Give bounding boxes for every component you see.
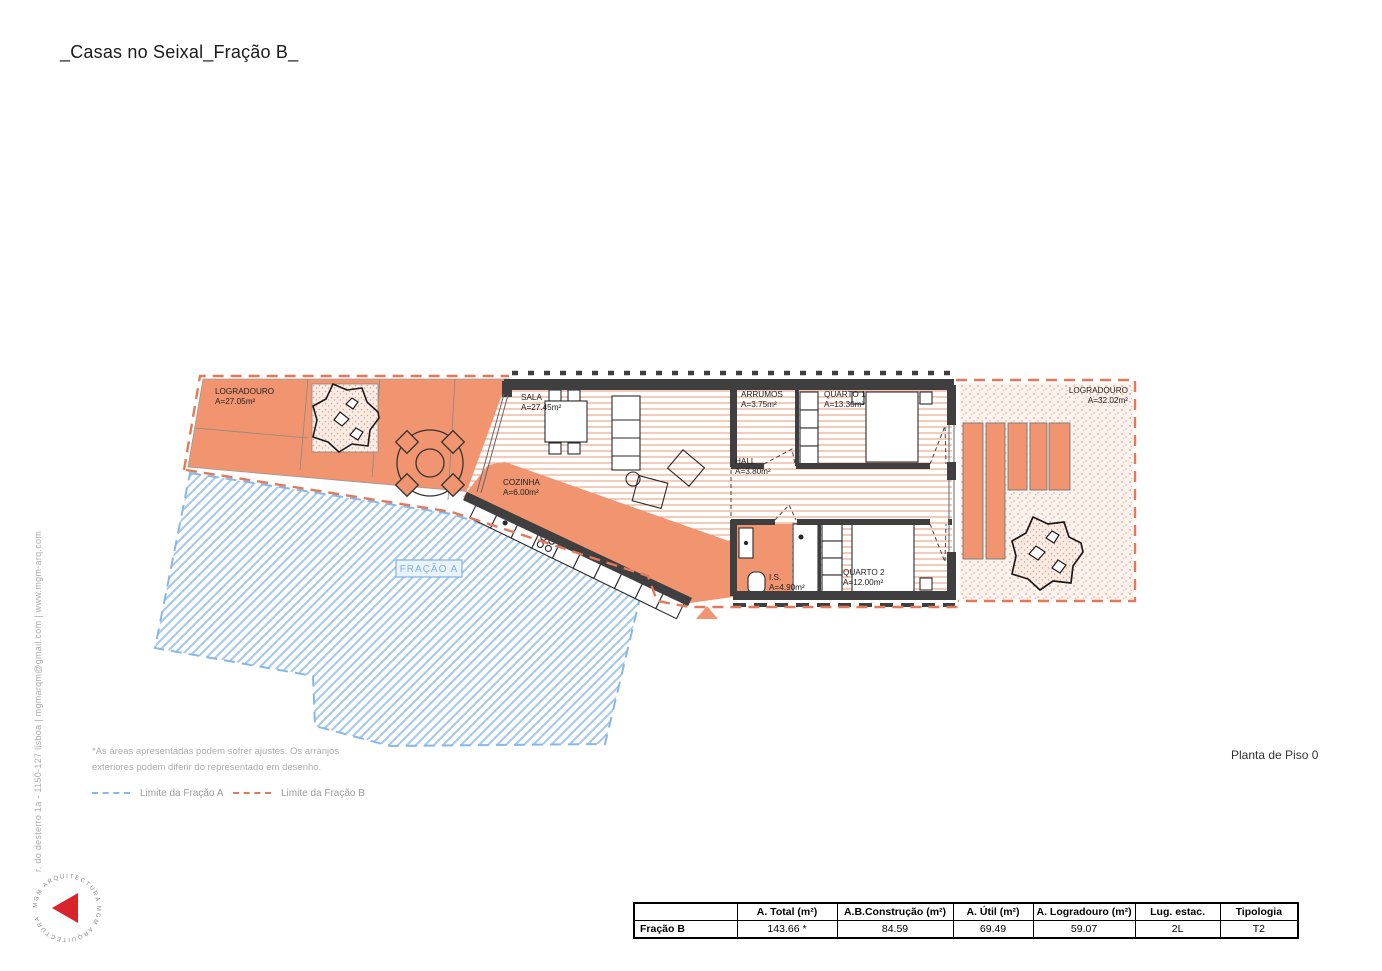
room-label-is: I.S. [769,573,781,582]
arrumos-wardrobe [800,392,818,464]
room-area-arrumos: A=3.75m² [741,400,777,409]
areas-table-row-fracao-b: Fração B 143.66 * 84.59 69.49 59.07 2L T… [634,921,1298,939]
room-area-sala: A=27.45m² [521,403,562,412]
header-lug-estac: Lug. estac. [1135,903,1220,921]
cell-a-total: 143.66 * [737,921,837,939]
areas-table-header-row: A. Total (m²) A.B.Construção (m²) A. Úti… [634,903,1298,921]
room-area-logradouro-right: A=32.02m² [1088,396,1129,405]
room-label-cozinha: COZINHA [503,478,540,487]
fracao-a-tag: FRAÇÃO A [396,560,462,577]
room-label-arrumos: ARRUMOS [741,390,783,399]
legend-fracao-a: Limite da Fração A [92,788,223,799]
room-label-logradouro-left: LOGRADOURO [215,387,274,396]
header-a-util: A. Útil (m²) [953,903,1033,921]
legend-fracao-a-label: Limite da Fração A [140,788,223,799]
cell-fracao-b: Fração B [634,921,737,939]
mgm-logo: MGM ARQUITECTURA MGM ARQUITECTURA [33,874,101,942]
cell-a-logradouro: 59.07 [1033,921,1135,939]
blue-dash-icon [92,792,130,794]
header-ab-construcao: A.B.Construção (m²) [837,903,953,921]
note-line-1: *As áreas apresentadas podem sofrer ajus… [92,744,339,760]
note-line-2: exteriores podem diferir do representado… [92,760,339,776]
nightstand [920,578,932,590]
room-label-hall: HALL [735,457,756,466]
shelf-unit [612,396,640,470]
nightstand [920,392,932,404]
room-area-logradouro-left: A=27.05m² [215,397,256,406]
areas-table: A. Total (m²) A.B.Construção (m²) A. Úti… [633,902,1299,939]
room-area-cozinha: A=6.00m² [503,488,539,497]
bed [866,392,918,462]
cell-tipologia: T2 [1220,921,1298,939]
room-area-hall: A=3.80m² [735,467,771,476]
legend-fracao-b-label: Limite da Fração B [281,788,365,799]
room-label-quarto2: QUARTO 2 [843,568,885,577]
header-a-total: A. Total (m²) [737,903,837,921]
room-area-quarto2: A=12.00m² [843,578,884,587]
header-empty [634,903,737,921]
orange-dash-icon [233,792,271,794]
header-tipologia: Tipologia [1220,903,1298,921]
toilet [748,572,765,594]
drawing-title: Planta de Piso 0 [1231,748,1318,762]
room-label-quarto1: QUARTO 1 [824,390,866,399]
room-area-quarto1: A=13.30m² [824,400,865,409]
cell-ab-construcao: 84.59 [837,921,953,939]
logo-triangle-icon [52,893,78,923]
floor-plan-drawing: LOGRADOURO A=27.05m² LOGRADOURO A=32.02m… [0,0,1382,971]
room-label-logradouro-right: LOGRADOURO [1069,386,1128,395]
header-a-logradouro: A. Logradouro (m²) [1033,903,1135,921]
cell-a-util: 69.49 [953,921,1033,939]
cell-lug-estac: 2L [1135,921,1220,939]
legend-fracao-b: Limite da Fração B [233,788,365,799]
room-area-is: A=4.90m² [769,583,805,592]
fracao-a-label: FRAÇÃO A [400,562,459,575]
room-label-sala: SALA [521,393,542,402]
area-disclaimer-note: *As áreas apresentadas podem sofrer ajus… [92,744,339,776]
tree [312,384,379,452]
right-logradouro: LOGRADOURO A=32.02m² [960,383,1133,600]
